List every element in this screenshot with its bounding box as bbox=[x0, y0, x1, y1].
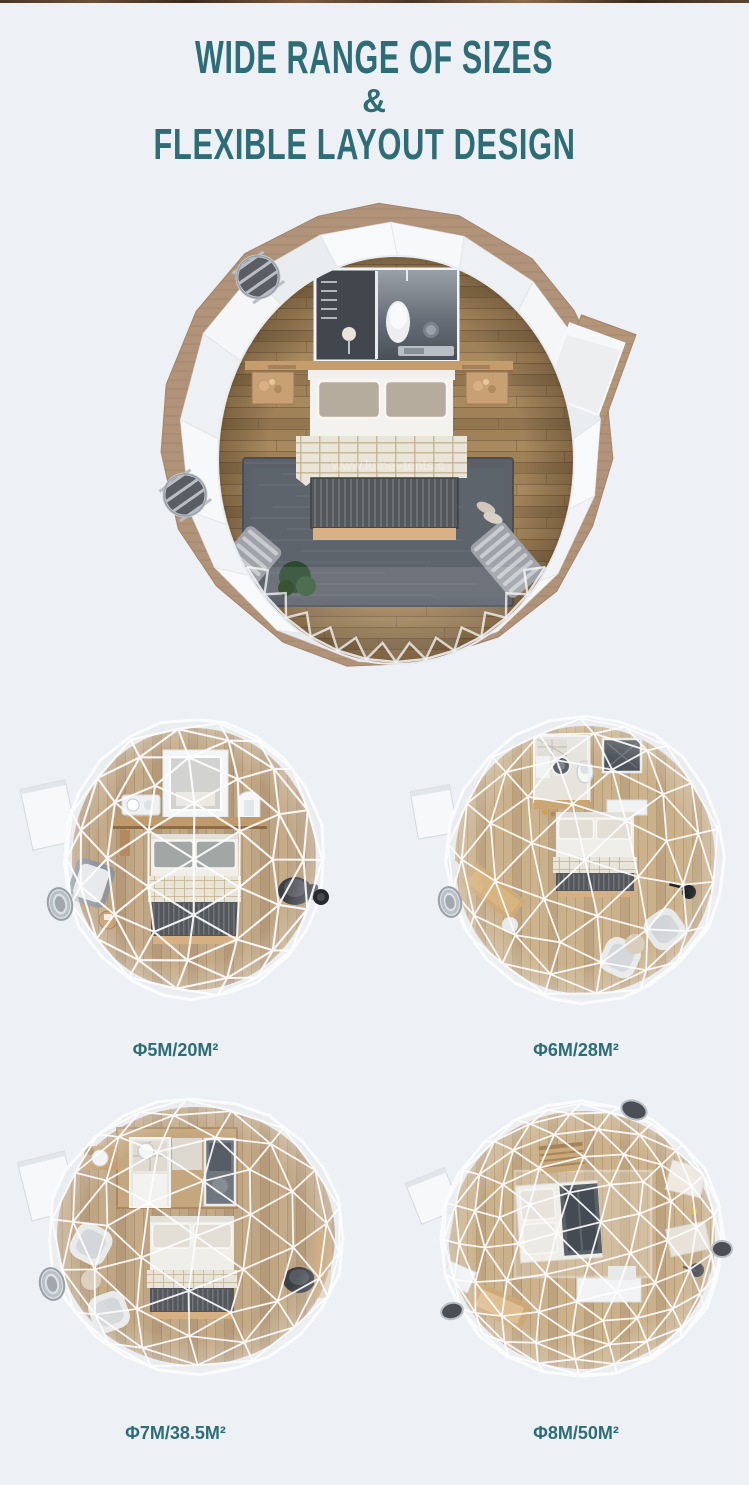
svg-text:www.lumei-tents.c: www.lumei-tents.c bbox=[331, 457, 445, 473]
